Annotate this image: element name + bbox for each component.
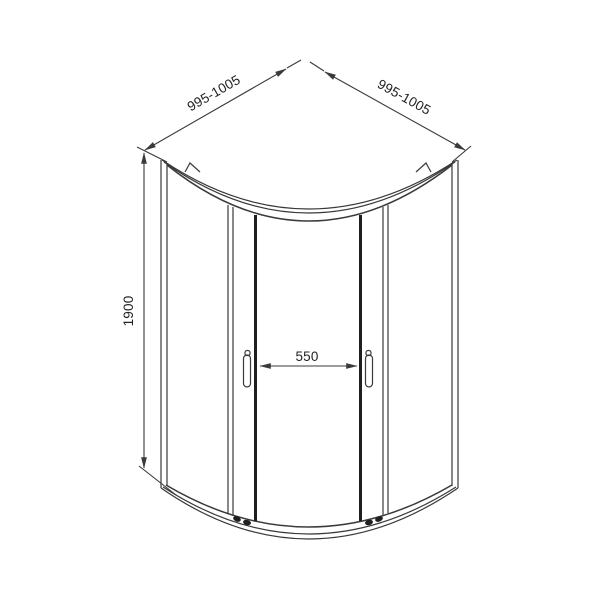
dimension-annotations <box>137 60 471 495</box>
right-door-handle <box>366 351 373 388</box>
diagram-canvas: 1900 995-1005 995-1005 550 <box>0 0 600 600</box>
shower-enclosure-technical-drawing: 1900 995-1005 995-1005 550 <box>0 0 600 600</box>
left-width-dimension-label: 995-1005 <box>185 72 243 114</box>
left-door-handle <box>244 351 251 388</box>
left-width-dimension-line <box>145 69 286 150</box>
height-extension-line-bottom <box>139 466 176 495</box>
bottom-rail-curve-inner <box>166 485 452 527</box>
right-width-dimension-label: 995-1005 <box>375 76 434 118</box>
right-handle-bar <box>366 355 373 387</box>
left-width-apex-extension-line <box>287 60 301 68</box>
left-handle-bar <box>244 355 251 387</box>
height-dimension-label: 1900 <box>121 296 136 327</box>
left-top-roller-bracket <box>185 163 200 172</box>
top-rail-curve-middle <box>164 162 455 213</box>
right-top-roller-bracket <box>416 163 431 172</box>
height-extension-line-top <box>137 147 167 162</box>
bottom-rail-curve-outer <box>161 488 458 539</box>
top-rail-curve-outer <box>162 160 457 209</box>
right-width-apex-extension-line <box>310 62 324 71</box>
opening-dimension-label: 550 <box>295 349 318 364</box>
